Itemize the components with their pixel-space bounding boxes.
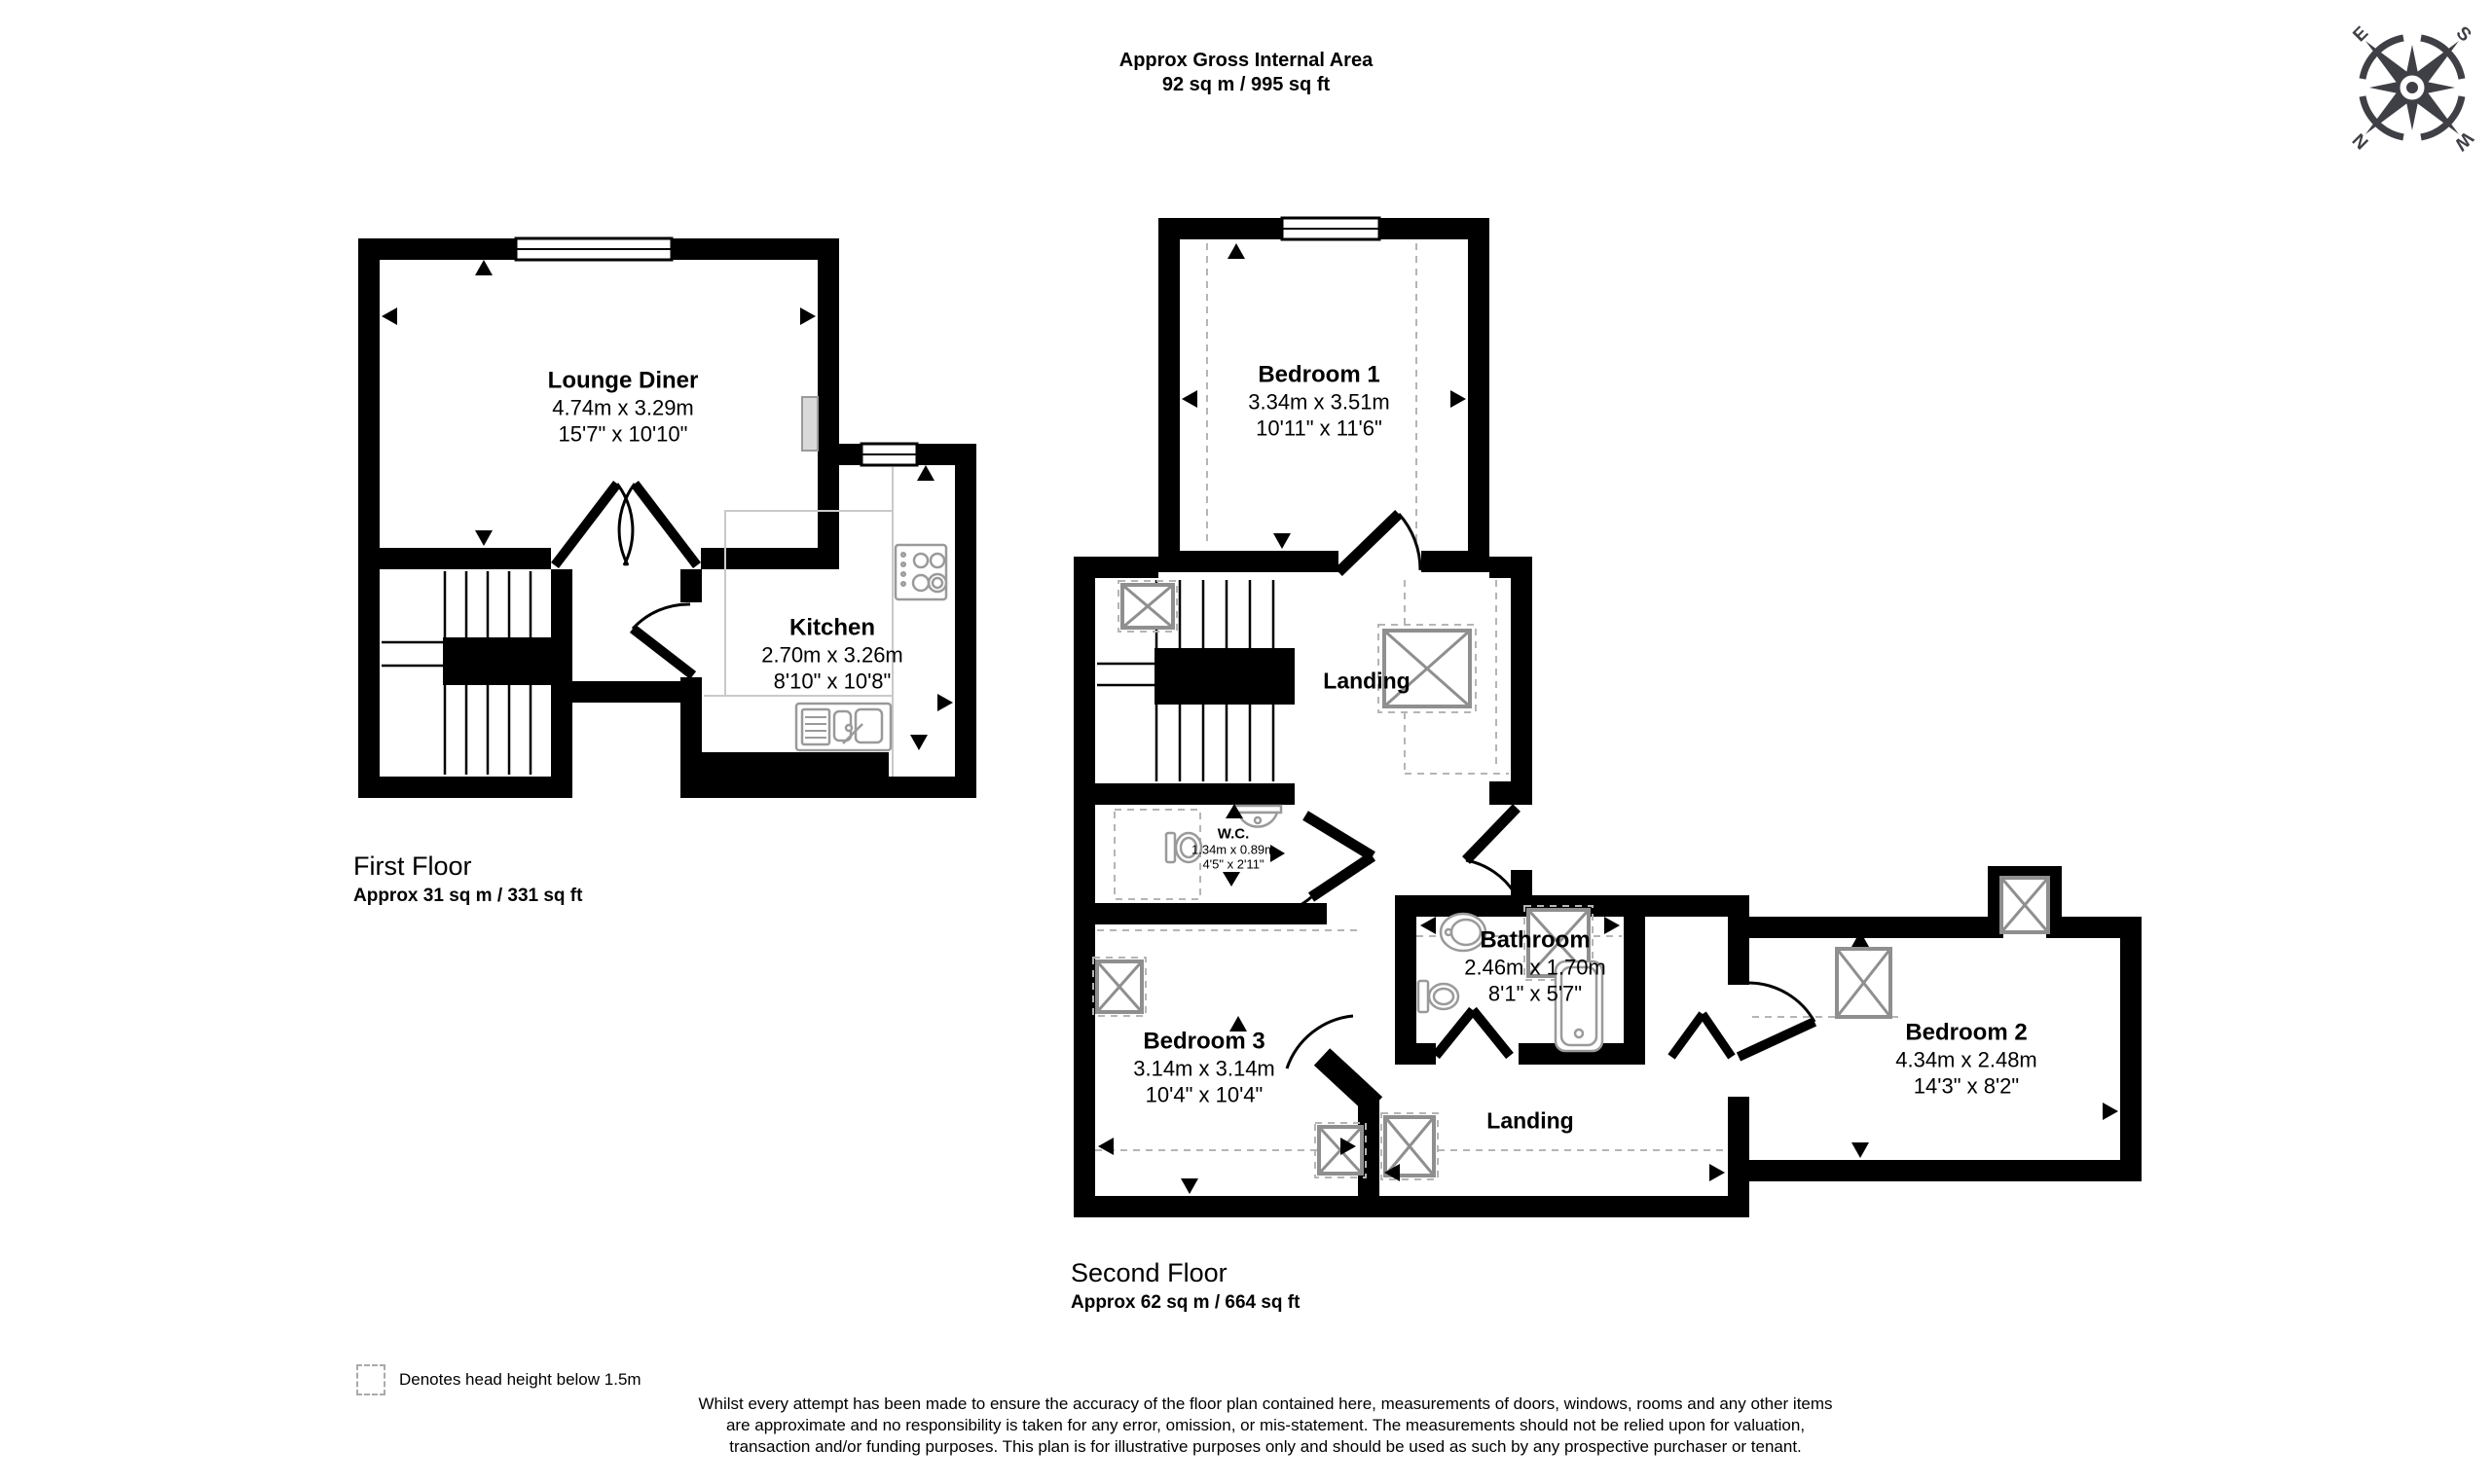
room-dim-imperial: 10'11" x 11'6" [1248,416,1390,442]
floor-name: First Floor [353,849,582,884]
floor-title-second: Second Floor Approx 62 sq m / 664 sq ft [1071,1255,1300,1316]
diagonal-wall [1322,1057,1374,1105]
compass-letter-s: S [2452,22,2475,46]
lower-landing-x-box-large [1385,1117,1434,1176]
room-dim-imperial: 8'10" x 10'8" [761,669,903,695]
room-dim-metric: 3.34m x 3.51m [1248,389,1390,416]
kitchen-door [633,604,693,675]
room-dim-metric: 4.34m x 2.48m [1895,1047,2037,1073]
room-name: Bedroom 3 [1133,1028,1275,1056]
room-label-landing-upper: Landing [1323,668,1410,696]
room-dim-metric: 2.70m x 3.26m [761,642,903,669]
stairs-x-box [1122,585,1173,628]
room-label-bedroom-2: Bedroom 2 4.34m x 2.48m 14'3" x 8'2" [1895,1019,2037,1100]
room-dim-metric: 4.74m x 3.29m [548,395,699,421]
room-name: Bathroom [1464,926,1606,955]
room-dim-metric: 1.34m x 0.89m [1191,843,1275,857]
first-floor-plan [358,238,976,798]
room-dim-imperial: 10'4" x 10'4" [1133,1082,1275,1108]
title-line1: Approx Gross Internal Area [1119,49,1373,73]
kitchen-window [861,444,917,465]
room-label-lounge-diner: Lounge Diner 4.74m x 3.29m 15'7" x 10'10… [548,367,699,448]
compass-letter-w: W [2450,127,2477,155]
room-dim-imperial: 14'3" x 8'2" [1895,1073,2037,1100]
lounge-window [516,238,672,260]
room-name: Bedroom 1 [1248,361,1390,389]
first-floor-stairs [382,571,572,775]
bathroom-toilet [1418,981,1458,1012]
room-name: Lounge Diner [548,367,699,395]
room-name: Landing [1323,668,1410,696]
floor-area: Approx 62 sq m / 664 sq ft [1071,1290,1300,1316]
room-name: W.C. [1191,826,1275,843]
room-label-bedroom-1: Bedroom 1 3.34m x 3.51m 10'11" x 11'6" [1248,361,1390,442]
compass-center-dot [2406,82,2418,93]
room-label-kitchen: Kitchen 2.70m x 3.26m 8'10" x 10'8" [761,614,903,695]
room-dim-imperial: 8'1" x 5'7" [1464,981,1606,1007]
floor-name: Second Floor [1071,1255,1300,1290]
landing-door [1466,808,1517,893]
bedroom2-x-box [1837,949,1890,1017]
compass-rose: E S N W [2349,22,2476,154]
kitchen-hob [896,545,946,599]
lounge-radiator [802,397,818,451]
room-dim-metric: 3.14m x 3.14m [1133,1056,1275,1082]
bedroom2-dormer-x-box [2001,878,2048,932]
room-label-bedroom-3: Bedroom 3 3.14m x 3.14m 10'4" x 10'4" [1133,1028,1275,1108]
room-dim-imperial: 15'7" x 10'10" [548,421,699,448]
title-line2: 92 sq m / 995 sq ft [1119,73,1373,97]
legend-text: Denotes head height below 1.5m [399,1370,641,1390]
bathroom-door [1436,1010,1510,1056]
kitchen-sink [796,704,891,750]
disclaimer-text: Whilst every attempt has been made to en… [691,1394,1840,1458]
floor-area: Approx 31 sq m / 331 sq ft [353,884,582,909]
head-height-legend: Denotes head height below 1.5m [356,1364,641,1395]
room-dim-imperial: 4'5" x 2'11" [1191,857,1275,872]
room-label-wc: W.C. 1.34m x 0.89m 4'5" x 2'11" [1191,826,1275,872]
room-label-bathroom: Bathroom 2.46m x 1.70m 8'1" x 5'7" [1464,926,1606,1007]
bedroom3-x-box [1097,961,1142,1012]
bedroom1-door [1338,514,1420,572]
lower-landing-door [1671,1014,1732,1057]
room-label-landing-lower: Landing [1486,1107,1573,1136]
bedroom2-door [1739,983,1814,1057]
floorplan-page: E S N W Approx Gross Internal Area 92 sq… [0,0,2492,1484]
floor-title-first: First Floor Approx 31 sq m / 331 sq ft [353,849,582,909]
room-name: Landing [1486,1107,1573,1136]
dashed-legend-box [356,1364,385,1395]
room-name: Bedroom 2 [1895,1019,2037,1047]
room-dim-metric: 2.46m x 1.70m [1464,955,1606,981]
compass-letter-e: E [2349,22,2372,46]
gross-internal-area-title: Approx Gross Internal Area 92 sq m / 995… [1119,49,1373,97]
bedroom1-window [1282,218,1379,239]
lounge-double-door [555,484,697,565]
compass-letter-n: N [2349,128,2373,153]
room-name: Kitchen [761,614,903,642]
